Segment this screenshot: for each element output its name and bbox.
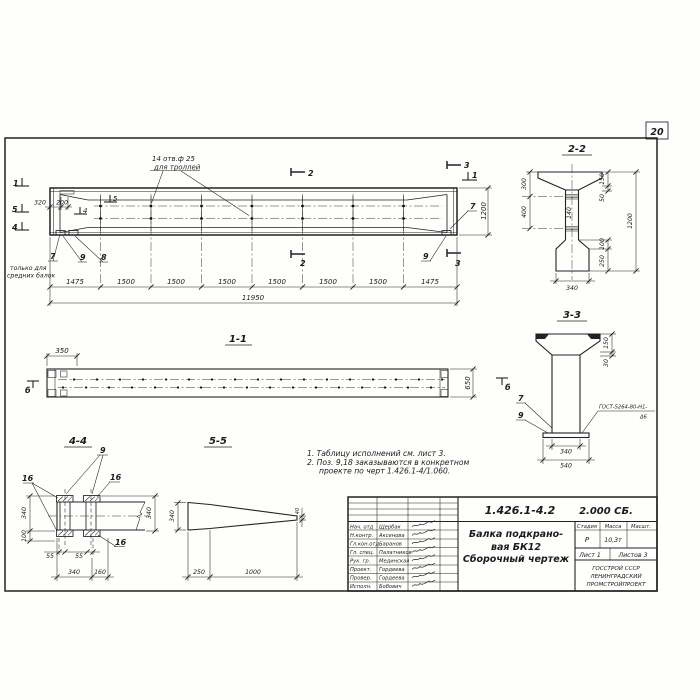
dim-340-44-right: 340 — [146, 507, 153, 519]
mark-1-left: 1 — [13, 179, 19, 188]
dim-160-44: 160 — [94, 569, 106, 576]
weld-callout-line2: Δ6 — [639, 415, 648, 421]
section-3-3-title: 3-3 — [563, 310, 581, 321]
pos-16-b: 16 — [110, 473, 122, 482]
dim-seg-2: 1500 — [117, 278, 135, 286]
doc-number: 1.426.1-4.2 — [485, 504, 556, 517]
hole-callout-line1: 14 отв.ф 25 — [152, 155, 196, 163]
signer-name: Гордеева — [379, 576, 405, 582]
dim-30-33: 30 — [603, 359, 610, 367]
mark-2-top: 2 — [308, 169, 314, 178]
section-5-5-title: 5-5 — [209, 436, 227, 447]
dim-seg-5: 1500 — [268, 278, 286, 286]
dim-total: 11950 — [242, 294, 265, 302]
view-1-1-linework — [27, 345, 508, 400]
mark-3-bottom: 3 — [455, 259, 461, 268]
pos-leaders-left — [48, 234, 108, 262]
mass-header: Масса — [605, 524, 622, 530]
hole-callout — [150, 171, 249, 216]
dim-55-a: 55 — [46, 553, 54, 560]
dim-seg-8: 1475 — [421, 278, 439, 286]
signer-role: Нач. отд — [350, 525, 374, 531]
mark-b-right: б — [505, 382, 511, 392]
dim-340-44-bottom: 340 — [68, 569, 80, 576]
dim-seg-6: 1500 — [319, 278, 337, 286]
signer-name: Аксенова — [378, 533, 405, 539]
dim-50-22: 50 — [599, 194, 606, 202]
mark-4-inner: 4 — [83, 207, 87, 215]
mark-5-inner: 5 — [113, 195, 118, 203]
signer-role: Гл.кон.отд — [350, 542, 379, 548]
pos-9-33: 9 — [518, 411, 524, 420]
dim-540-33: 540 — [560, 463, 572, 470]
sheet-frame — [5, 122, 668, 591]
section-5-5-linework — [174, 447, 306, 581]
view-1-1-bolts — [62, 378, 443, 388]
drawing-title-line2: вая БК12 — [491, 542, 541, 553]
stage-value: Р — [585, 536, 590, 544]
pos-16-c: 16 — [115, 538, 127, 547]
signer-name: Мединская — [379, 559, 409, 565]
dim-400: 400 — [521, 206, 528, 218]
signer-name: Палатников — [379, 550, 412, 556]
pos-9-44: 9 — [100, 446, 106, 455]
section-2-2-linework — [522, 155, 640, 284]
hole-callout-line2: для троллей — [153, 164, 201, 172]
dim-340-55: 340 — [169, 510, 176, 522]
scale-header: Масшт. — [631, 524, 651, 530]
dim-seg-3: 1500 — [167, 278, 185, 286]
org-line3: ПРОМСТРОЙПРОЕКТ — [587, 581, 647, 588]
note-left-line2: средних балок — [7, 272, 55, 280]
pos-7-right: 7 — [470, 202, 476, 211]
mark-5-left: 5 — [12, 205, 18, 214]
dim-140: 140 — [566, 207, 573, 219]
dim-100-44: 100 — [21, 530, 28, 542]
main-dim-linework — [45, 185, 492, 306]
dim-340-44-left: 340 — [21, 507, 28, 519]
section-4-4-linework — [23, 447, 159, 581]
dim-150-22: 150 — [599, 173, 606, 185]
signer-role: Рук. гр. — [350, 559, 370, 565]
note-line-3: проекте по черт 1.426.1-4/1.060. — [319, 467, 450, 476]
weld-callout-line1: ГОСТ-5264-80-Н1- — [599, 405, 647, 411]
dim-340-33: 340 — [560, 449, 572, 456]
signer-role: Исполн. — [350, 584, 372, 590]
pos-7-left: 7 — [50, 252, 56, 261]
dim-350: 350 — [55, 347, 69, 355]
dim-100-22: 100 — [599, 238, 606, 250]
dim-200: 200 — [56, 200, 68, 207]
pos-8: 8 — [101, 253, 107, 262]
dim-250-22: 250 — [599, 255, 606, 267]
dim-150-33: 150 — [603, 337, 610, 349]
mark-3-top: 3 — [464, 161, 470, 170]
org-line2: ЛЕНИНГРАДСКИЙ — [589, 573, 642, 580]
note-left-line1: только для — [10, 265, 47, 272]
dim-1200-22: 1200 — [627, 213, 634, 229]
drawing-title-line3: Сборочный чертеж — [463, 554, 570, 565]
dim-340-22: 340 — [566, 285, 578, 292]
signer-rows: Нач. отд Щербак Н.контр. Аксенова Гл.кон… — [350, 521, 435, 591]
signer-role: Гл. спец. — [350, 550, 374, 556]
dim-seg-4: 1500 — [218, 278, 236, 286]
doc-code: 2.000 СБ. — [579, 506, 633, 517]
dim-1000-55: 1000 — [245, 569, 261, 576]
pos-9-right: 9 — [423, 252, 429, 261]
pos-16-a: 16 — [22, 474, 34, 483]
dim-seg-1: 1475 — [66, 278, 84, 286]
section-2-2-title: 2-2 — [568, 144, 586, 155]
section-3-3-linework — [516, 321, 655, 464]
mark-4-left: 4 — [11, 223, 18, 232]
drawing-sheet: 20 — [0, 0, 700, 700]
note-line-1: 1. Таблицу исполнений см. лист 3. — [307, 449, 446, 458]
dim-55-b: 55 — [75, 553, 83, 560]
beam-elevation-linework — [50, 188, 457, 290]
dim-1200-main: 1200 — [480, 202, 488, 220]
mark-1-right: 1 — [472, 171, 478, 180]
stage-header: Стадия — [577, 524, 597, 530]
dim-250-55: 250 — [193, 569, 205, 576]
signer-name: Бобович — [379, 584, 402, 590]
mark-2-bottom: 2 — [300, 259, 306, 268]
signer-name: Баранов — [379, 542, 402, 548]
view-1-1-title: 1-1 — [229, 334, 247, 345]
dim-320: 320 — [34, 200, 46, 207]
dim-40-55: 40 — [295, 507, 301, 514]
signer-role: Н.контр. — [350, 533, 373, 539]
signer-role: Проект. — [350, 567, 371, 573]
dim-300: 300 — [521, 178, 528, 190]
dim-650: 650 — [464, 376, 472, 390]
drawing-title-line1: Балка подкрано- — [469, 529, 563, 540]
org-line1: ГОССТРОЙ СССР — [592, 565, 640, 572]
pos-9-left: 9 — [80, 253, 86, 262]
mark-b-left: б — [25, 385, 31, 395]
signer-role: Провер. — [350, 576, 372, 582]
sheet-count: Листов 3 — [617, 552, 647, 559]
signer-name: Гордеева — [379, 567, 405, 573]
section-4-4-title: 4-4 — [68, 436, 87, 447]
mass-value: 10,3т — [604, 537, 622, 544]
dim-seg-7: 1500 — [369, 278, 387, 286]
pos-7-33: 7 — [518, 394, 524, 403]
signer-name: Щербак — [379, 525, 402, 531]
sheet-number: Лист 1 — [578, 552, 601, 559]
page-number: 20 — [650, 127, 664, 138]
